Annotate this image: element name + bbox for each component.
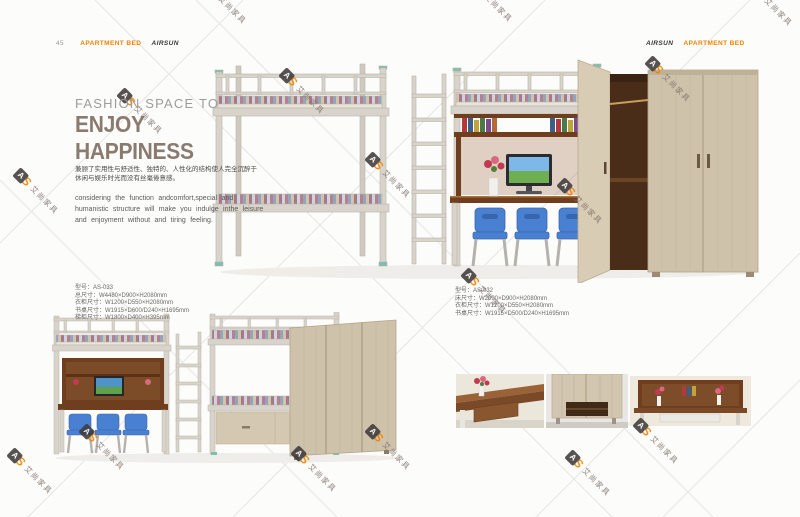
title-line2: ENJOY HAPPINESS <box>75 112 240 166</box>
category-label: APARTMENT BED <box>684 40 745 47</box>
detail-photo-shelf <box>630 376 751 426</box>
header-right: AIRSUN APARTMENT BED <box>646 40 745 47</box>
title-line1: FASHION SPACE TO <box>75 96 240 111</box>
detail-photo-desk <box>456 374 544 428</box>
intro-en: considering the function andcomfort,spec… <box>75 193 240 227</box>
spec-line: 梯柜尺寸：W1800×D400×H395mm <box>75 315 189 323</box>
chair <box>515 208 549 266</box>
wardrobe <box>290 320 396 460</box>
intro-cn-line1: 兼顾了实用性与舒适性、独特的、人性化的结构使人完全沉醉于 <box>75 165 240 174</box>
brand-label: AIRSUN <box>152 40 179 47</box>
chair <box>67 414 93 453</box>
intro-cn-line2: 休闲与娱乐时光而没有丝毫倦意感。 <box>75 174 240 183</box>
chairs <box>473 208 591 266</box>
spec-line: 书桌尺寸：W1915×D500/D240×H1695mm <box>455 311 569 319</box>
specs-right: 型号：AS-032 床尺寸：W2090×D900×H2080mm 衣柜尺寸：W1… <box>455 288 569 318</box>
intro-en-line2: humanistic structure will make you indul… <box>75 204 240 215</box>
chairs <box>67 414 149 453</box>
intro-en-line1: considering the function andcomfort,spec… <box>75 193 240 204</box>
category-label: APARTMENT BED <box>80 40 141 47</box>
spec-model: 型号：AS-032 <box>455 288 569 296</box>
spec-line: 书桌尺寸：W1915×D600/D240×H1695mm <box>75 308 189 316</box>
wardrobe-open <box>578 60 758 283</box>
chair <box>123 414 149 453</box>
ladder <box>176 332 201 452</box>
page-number: 45 <box>56 40 64 47</box>
catalog-spread: 45 APARTMENT BED AIRSUN AIRSUN APARTMENT… <box>0 0 800 517</box>
spec-line: 总尺寸：W4480×D900×H2080mm <box>75 293 189 301</box>
spec-model: 型号：AS-033 <box>75 285 189 293</box>
intro-en-line3: and enjoyment without and tiring feeling… <box>75 215 240 226</box>
books <box>462 118 585 132</box>
brand-label: AIRSUN <box>646 40 673 47</box>
spec-line: 衣柜尺寸：W1200×D550×H2080mm <box>75 300 189 308</box>
spec-line: 床尺寸：W2090×D900×H2080mm <box>455 296 569 304</box>
detail-photo-cabinet <box>546 374 628 428</box>
main-product-photo <box>210 58 770 283</box>
ladder <box>412 74 446 264</box>
intro-block: FASHION SPACE TO ENJOY HAPPINESS 兼顾了实用性与… <box>75 96 240 226</box>
header-left: 45 APARTMENT BED AIRSUN <box>56 40 179 47</box>
specs-left: 型号：AS-033 总尺寸：W4480×D900×H2080mm 衣柜尺寸：W1… <box>75 285 189 323</box>
chair <box>473 208 507 266</box>
spec-line: 衣柜尺寸：W1200×D550×H2080mm <box>455 303 569 311</box>
chair <box>95 414 121 453</box>
secondary-product-photo <box>52 312 402 464</box>
